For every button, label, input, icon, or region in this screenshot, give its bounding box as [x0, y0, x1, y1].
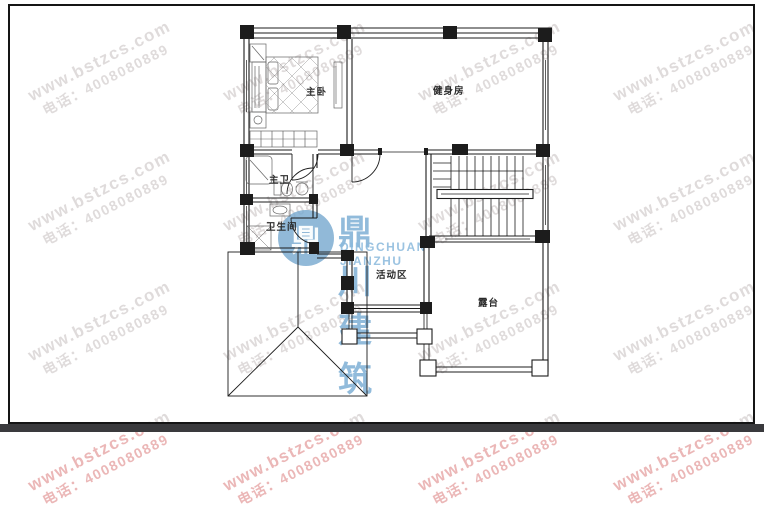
door-master-bath — [287, 168, 313, 194]
wall-stair-bottom-window — [429, 236, 543, 242]
roof-outline — [228, 252, 367, 396]
wall-left — [244, 25, 249, 254]
label-activity-area: 活动区 — [376, 267, 408, 281]
stairs — [426, 154, 533, 238]
wall-top-window-band — [247, 28, 552, 38]
wall-bedroom-gym-divider — [347, 39, 352, 150]
wardrobe — [250, 131, 317, 147]
floorplan-page: { "watermark": { "site": "www.bstzcs.com… — [0, 0, 764, 432]
bottom-bar — [0, 424, 764, 432]
floor-plan-svg — [0, 0, 764, 432]
wall-activity-right — [424, 242, 429, 312]
balcony-balustrade — [342, 312, 432, 360]
wall-activity-window — [352, 305, 424, 312]
wall-middle-horizontal — [244, 148, 543, 155]
label-master-bath: 主卫 — [269, 172, 290, 186]
label-gym: 健身房 — [433, 83, 465, 97]
door-master-bedroom — [292, 154, 318, 180]
label-toilet: 卫生间 — [266, 219, 298, 233]
label-master-bedroom: 主卧 — [306, 84, 327, 98]
tv-cabinet — [334, 62, 342, 108]
wall-right — [543, 39, 548, 238]
wall-bath-divider — [244, 198, 317, 202]
terrace-balustrade — [420, 242, 548, 376]
label-terrace: 露台 — [478, 295, 499, 309]
door-hall — [352, 154, 380, 182]
